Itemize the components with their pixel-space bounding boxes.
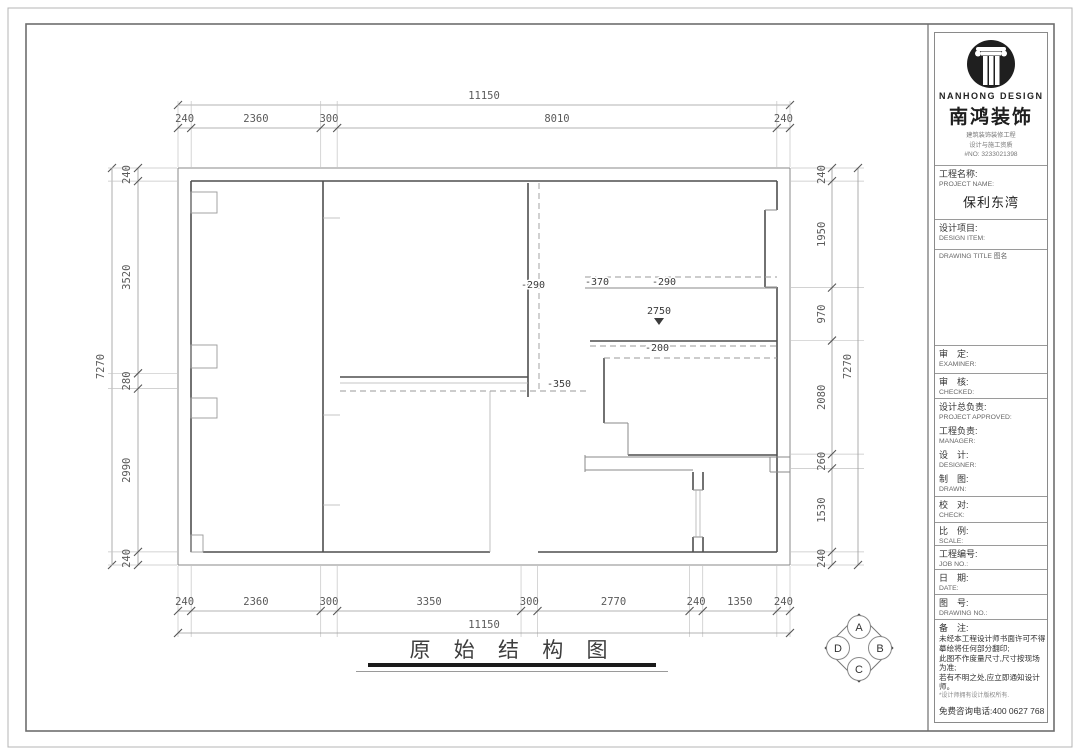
drawing-no-label-cn: 图 号:: [939, 597, 1043, 609]
dim-label: 3520: [121, 265, 133, 290]
level-annotation: -350: [547, 379, 571, 390]
drawing-no-label-en: DRAWING NO.:: [939, 609, 1043, 618]
dim-label: 2360: [243, 113, 268, 125]
level-annotation: -200: [645, 343, 669, 354]
dim-label: 260: [816, 452, 828, 471]
drawn-label-en: DRAWN:: [939, 485, 1043, 494]
compass-letter: B: [876, 643, 883, 655]
dim-label: 3350: [416, 596, 441, 608]
remark-section: 备 注: 未经本工程设计师书面许可不得 摹绘将任何部分翻印; 此图不作度量尺寸,…: [935, 620, 1047, 722]
drawing-no-field: 图 号: DRAWING NO.:: [935, 595, 1047, 620]
check-label-cn: 校 对:: [939, 499, 1043, 511]
examiner-label-en: EXAMINER:: [939, 360, 1043, 369]
scale-field: 比 例: SCALE:: [935, 523, 1047, 546]
dim-label: 1950: [816, 222, 828, 247]
dim-label: 2080: [816, 385, 828, 410]
dim-label: 1350: [727, 596, 752, 608]
project-approved-label-en: PROJECT APPROVED:: [939, 413, 1043, 422]
project-name-label-en: PROJECT NAME:: [939, 180, 1043, 189]
compass-letter: A: [855, 622, 863, 634]
design-item-label-en: DESIGN ITEM:: [939, 234, 1043, 243]
job-no-label-cn: 工程编号:: [939, 548, 1043, 560]
drawing-title-label: DRAWING TITLE 图名: [939, 252, 1043, 261]
dim-label: 11150: [468, 90, 500, 102]
company-qualification-line1: 建筑装饰装修工程: [942, 129, 1041, 139]
dim-label: 240: [121, 549, 133, 568]
project-name-label-cn: 工程名称:: [939, 168, 1043, 180]
level-marker-icon: [654, 318, 664, 325]
manager-label-cn: 工程负责:: [939, 425, 1043, 437]
drawn-label-cn: 制 图:: [939, 473, 1043, 485]
beam-dashed-lines: [340, 183, 777, 391]
dim-label: 280: [121, 371, 133, 390]
dim-label: 1530: [816, 497, 828, 522]
dim-label: 2990: [121, 458, 133, 483]
project-approved-label-cn: 设计总负责:: [939, 401, 1043, 413]
checked-field: 审 核: CHECKED:: [935, 374, 1047, 399]
designer-label-en: DESIGNER:: [939, 461, 1043, 470]
date-label-en: DATE:: [939, 584, 1043, 593]
company-qualification-line2: 设计与施工资质: [942, 139, 1041, 149]
staff-fields: 设计总负责: PROJECT APPROVED: 工程负责: MANAGER: …: [935, 399, 1047, 497]
checked-label-en: CHECKED:: [939, 388, 1043, 397]
dim-label: 970: [816, 305, 828, 324]
job-no-label-en: JOB NO.:: [939, 560, 1043, 569]
level-annotations: -290-370-2902750-200-350: [521, 277, 676, 390]
compass-indicator: ABCD: [825, 614, 893, 682]
job-no-field: 工程编号: JOB NO.:: [935, 546, 1047, 571]
compass-letter: C: [855, 664, 863, 676]
dim-label: 2770: [601, 596, 626, 608]
remark-line: 此图不作度量尺寸,尺寸按现场: [939, 654, 1043, 664]
compass-letter: D: [834, 643, 842, 655]
project-name-value: 保利东湾: [939, 192, 1043, 211]
dim-label: 240: [816, 549, 828, 568]
manager-label-en: MANAGER:: [939, 437, 1043, 446]
dim-label: 240: [121, 165, 133, 184]
dim-label: 240: [175, 596, 194, 608]
check-label-en: CHECK:: [939, 511, 1043, 520]
level-annotation: -290: [521, 280, 545, 291]
checked-label-cn: 审 核:: [939, 376, 1043, 388]
title-underline-thick: [368, 663, 656, 667]
dim-label: 2360: [243, 596, 268, 608]
company-logo-section: NANHONG DESIGN 南鸿装饰 建筑装饰装修工程 设计与施工资质 #NO…: [935, 33, 1047, 166]
scale-label-en: SCALE:: [939, 537, 1043, 546]
examiner-label-cn: 审 定:: [939, 348, 1043, 360]
company-name-en: NANHONG DESIGN: [939, 91, 1043, 101]
dim-label: 240: [774, 596, 793, 608]
remark-line: 师。: [939, 682, 1043, 692]
dim-label: 11150: [468, 619, 500, 631]
dim-label: 300: [319, 113, 338, 125]
drawing-title-field: DRAWING TITLE 图名: [935, 250, 1047, 346]
dim-label: 300: [520, 596, 539, 608]
dim-label: 8010: [544, 113, 569, 125]
remark-copyright: *设计师拥有设计版权所有.: [939, 692, 1043, 701]
remark-title: 备 注:: [939, 622, 1043, 634]
date-label-cn: 日 期:: [939, 572, 1043, 584]
title-block: NANHONG DESIGN 南鸿装饰 建筑装饰装修工程 设计与施工资质 #NO…: [928, 24, 1054, 731]
dim-label: 240: [816, 165, 828, 184]
remark-line: 摹绘将任何部分翻印;: [939, 644, 1043, 654]
remark-line: 若有不明之处,应立即通知设计: [939, 673, 1043, 683]
nanhong-column-logo-icon: [966, 39, 1016, 89]
hotline-phone: 免费咨询电话:400 0627 768: [939, 705, 1043, 717]
designer-label-cn: 设 计:: [939, 449, 1043, 461]
level-annotation: -370: [585, 277, 609, 288]
dim-label: 300: [319, 596, 338, 608]
drawing-title: 原 始 结 构 图: [350, 634, 676, 664]
drawing-sheet: 1115024023603008010240240236030033503002…: [0, 0, 1080, 755]
scale-label-cn: 比 例:: [939, 525, 1043, 537]
design-item-section: 设计项目: DESIGN ITEM:: [935, 220, 1047, 250]
company-license-no: #NO: 3233021398: [939, 151, 1043, 158]
check-field: 校 对: CHECK:: [935, 497, 1047, 523]
title-underline-thin: [356, 671, 668, 672]
dim-label: 7270: [95, 354, 107, 379]
dimension-lines: 1115024023603008010240240236030033503002…: [95, 90, 864, 637]
level-annotation: 2750: [647, 306, 671, 317]
project-name-section: 工程名称: PROJECT NAME: 保利东湾: [935, 166, 1047, 221]
remark-line: 未经本工程设计师书面许可不得: [939, 634, 1043, 644]
dim-label: 240: [774, 113, 793, 125]
examiner-field: 审 定: EXAMINER:: [935, 346, 1047, 374]
design-item-label-cn: 设计项目:: [939, 222, 1043, 234]
level-annotation: -290: [652, 277, 676, 288]
dim-label: 240: [687, 596, 706, 608]
date-field: 日 期: DATE:: [935, 570, 1047, 595]
remark-line: 为准;: [939, 663, 1043, 673]
walls: [178, 168, 790, 565]
company-name-cn: 南鸿装饰: [939, 102, 1043, 129]
dim-label: 7270: [842, 354, 854, 379]
dim-label: 240: [175, 113, 194, 125]
